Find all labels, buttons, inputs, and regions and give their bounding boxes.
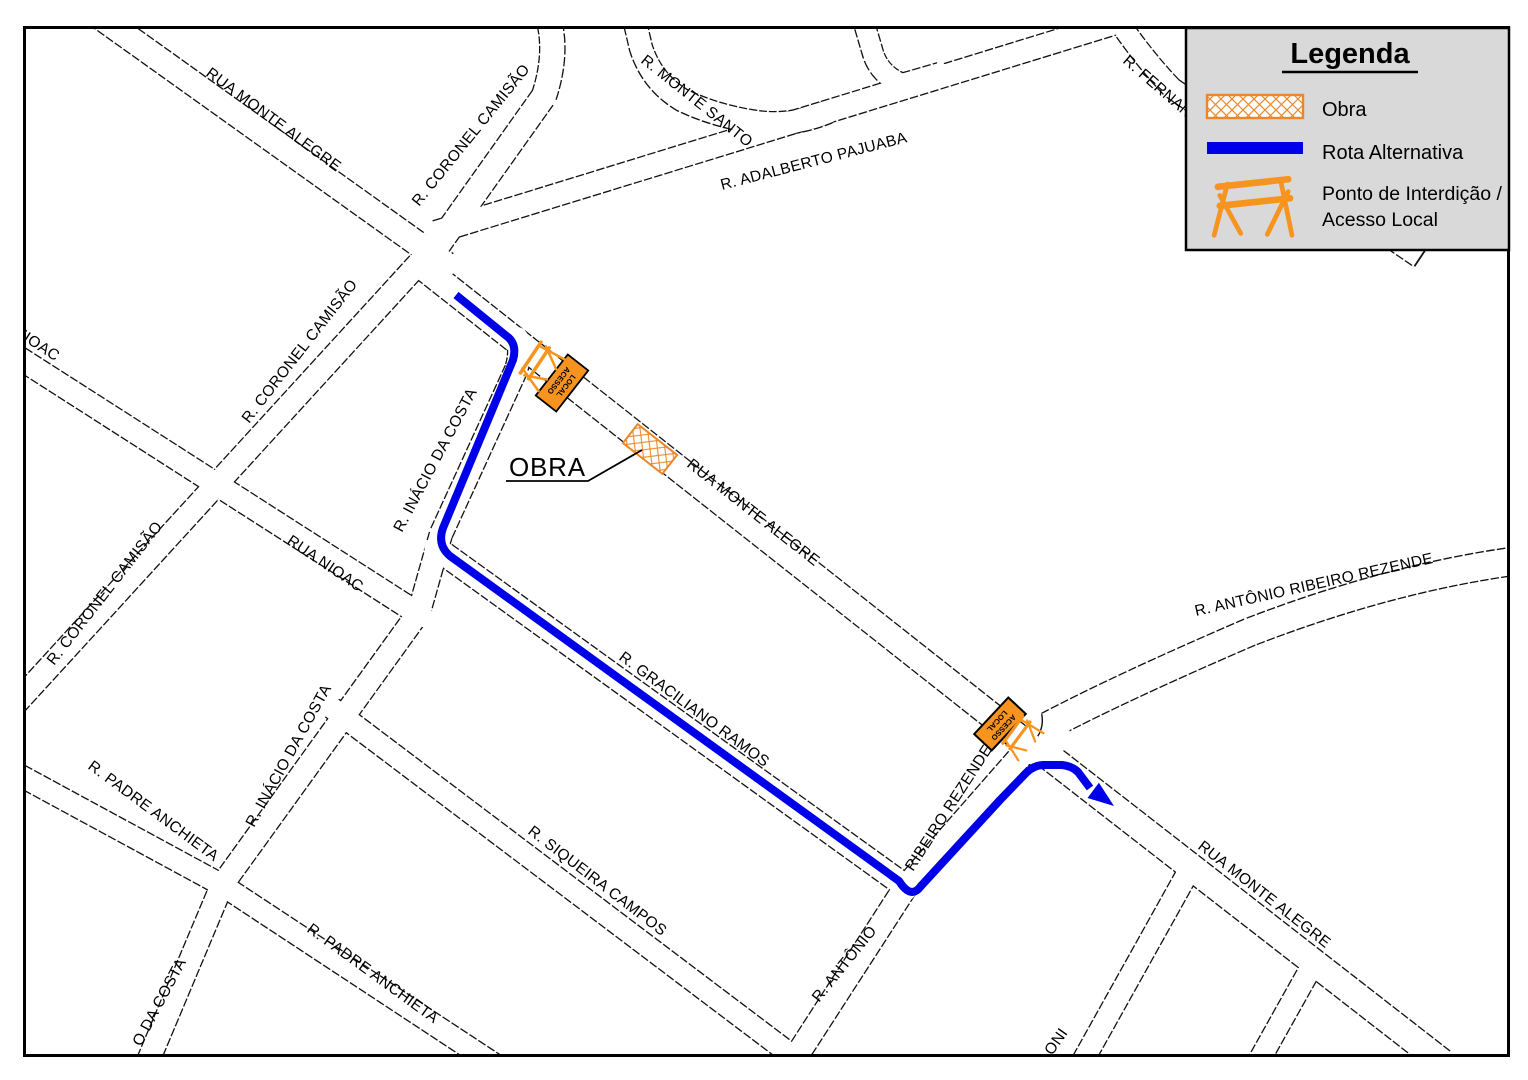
svg-text:OBRA: OBRA bbox=[509, 452, 586, 482]
svg-text:Obra: Obra bbox=[1322, 99, 1367, 121]
svg-text:Acesso Local: Acesso Local bbox=[1322, 209, 1438, 231]
svg-text:Rota Alternativa: Rota Alternativa bbox=[1322, 142, 1464, 164]
svg-text:Ponto de Interdição /: Ponto de Interdição / bbox=[1322, 183, 1503, 205]
svg-text:Legenda: Legenda bbox=[1290, 38, 1410, 70]
